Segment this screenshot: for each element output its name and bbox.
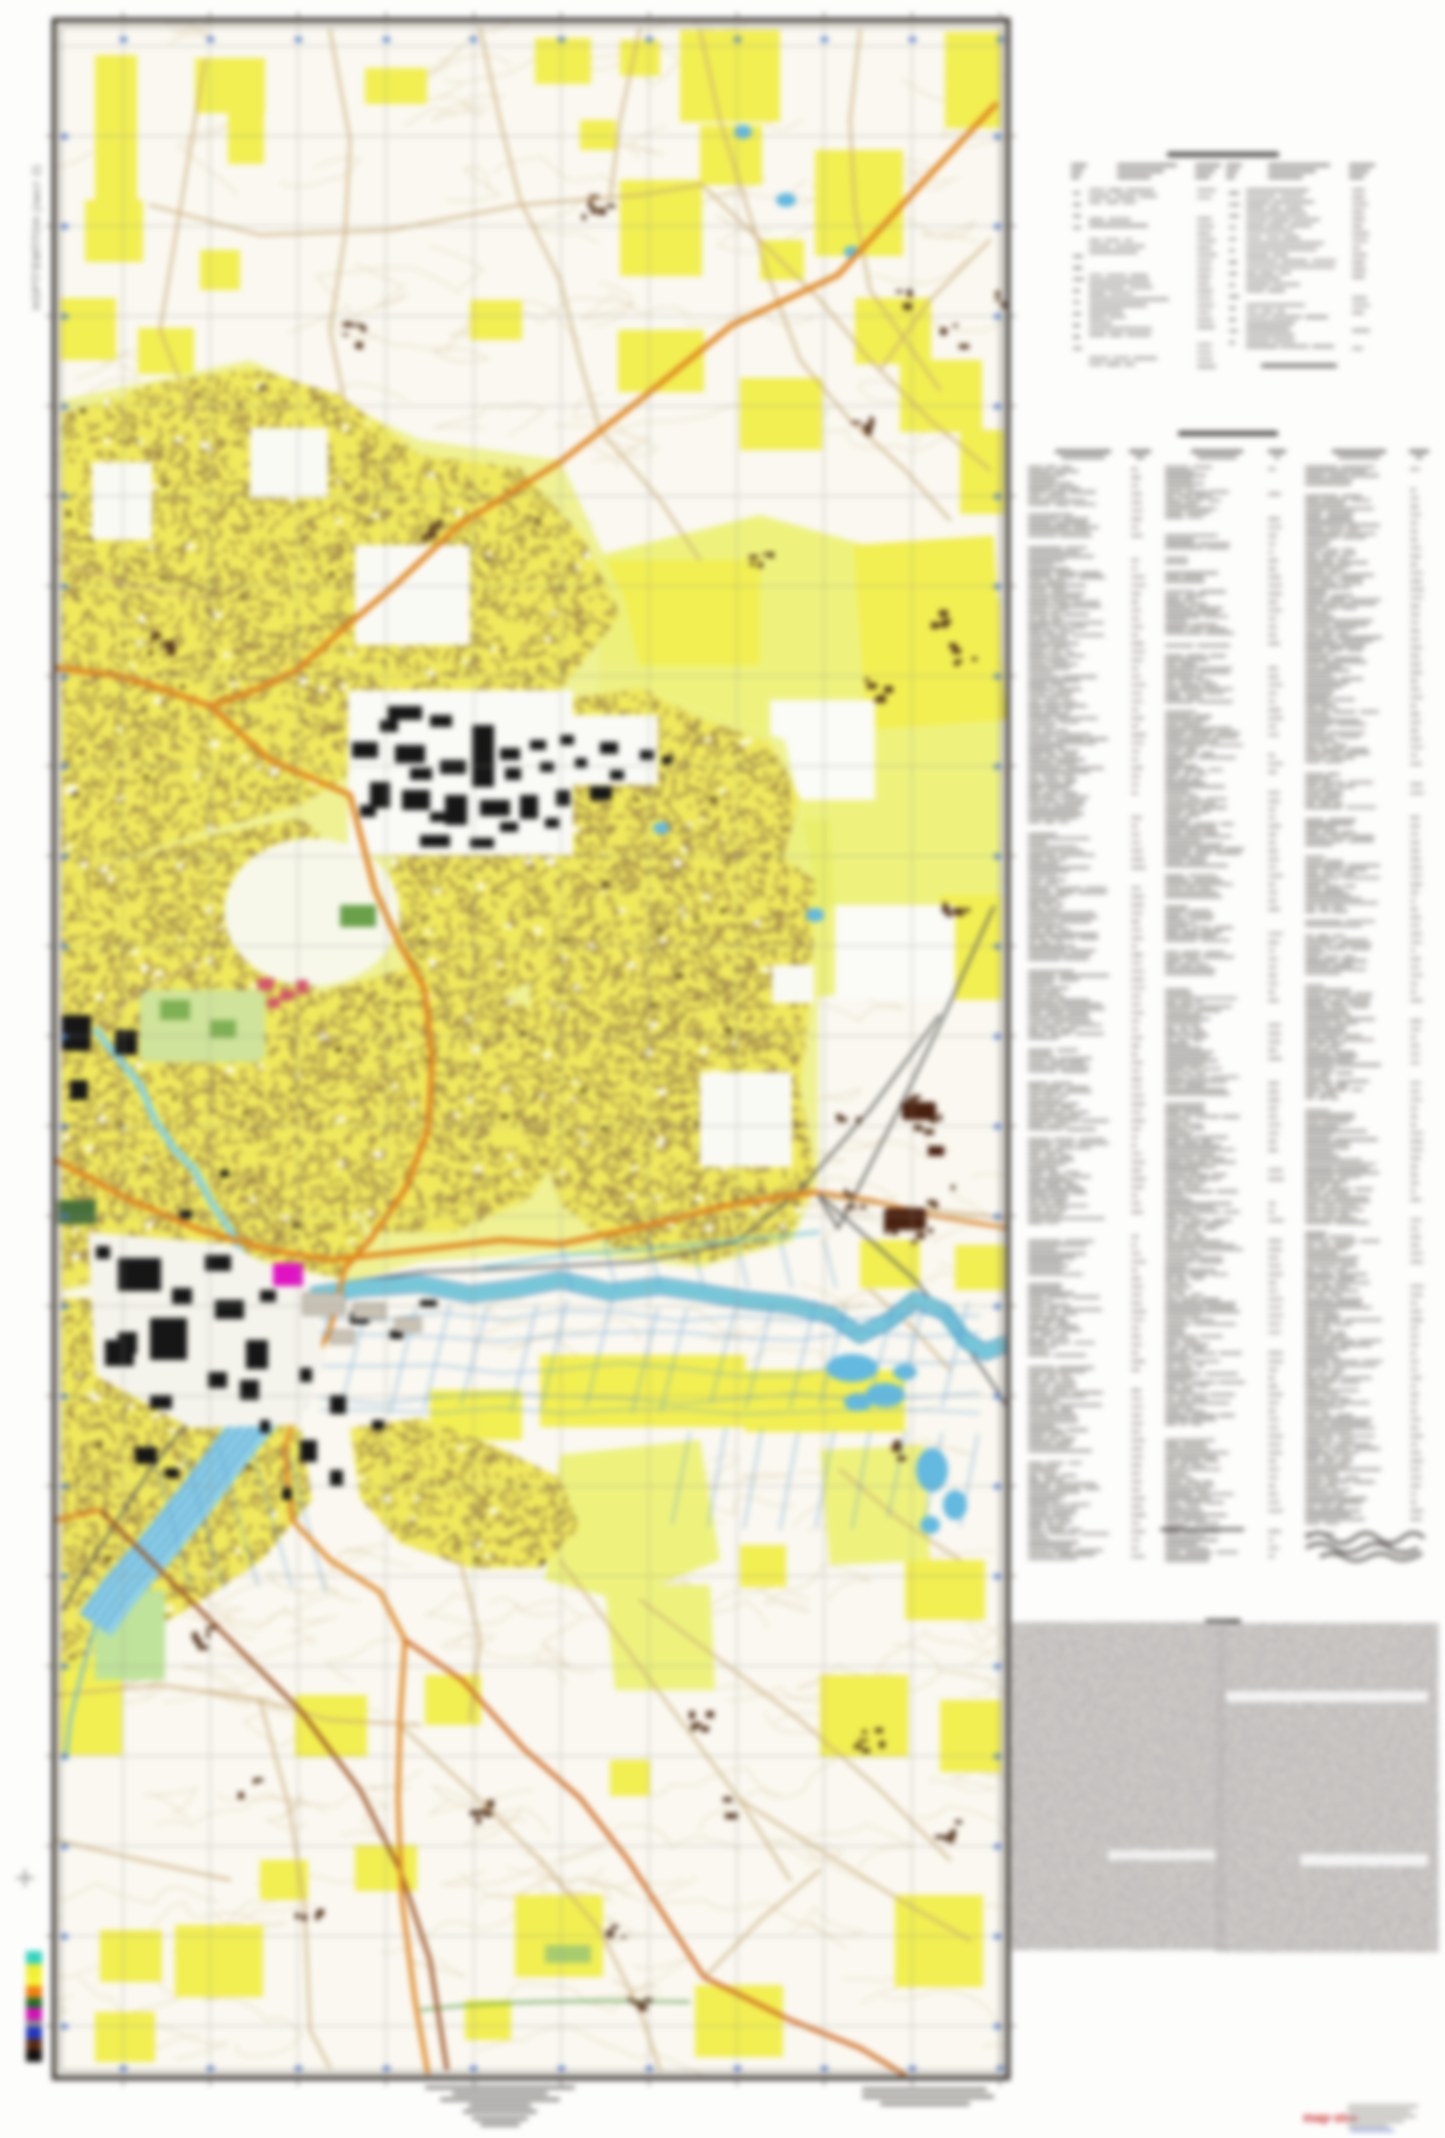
- svg-text:НОРТГЕМПТОН (лист 2): НОРТГЕМПТОН (лист 2): [31, 164, 43, 310]
- svg-text:map·stor: map·stor: [1303, 2110, 1359, 2125]
